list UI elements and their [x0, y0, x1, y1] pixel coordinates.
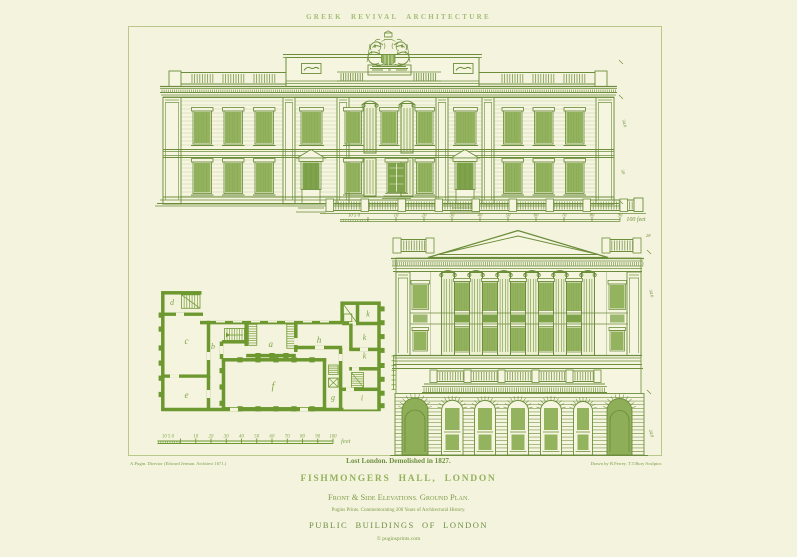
svg-text:100: 100 [329, 435, 337, 440]
svg-text:30: 30 [620, 169, 626, 175]
svg-text:k: k [366, 310, 370, 319]
svg-text:i: i [361, 394, 363, 403]
svg-text:10 5 0: 10 5 0 [162, 435, 175, 440]
svg-text:10: 10 [394, 214, 399, 219]
svg-text:h: h [317, 335, 322, 345]
svg-text:40: 40 [239, 435, 244, 440]
svg-text:24.8: 24.8 [648, 429, 655, 439]
svg-text:k: k [363, 333, 367, 342]
svg-text:b: b [211, 342, 215, 351]
svg-text:g: g [331, 393, 335, 402]
svg-text:20: 20 [209, 435, 214, 440]
svg-text:100 feet: 100 feet [626, 216, 645, 223]
svg-text:50: 50 [254, 435, 259, 440]
svg-text:50: 50 [506, 214, 511, 219]
svg-text:30: 30 [450, 214, 455, 219]
svg-text:e: e [185, 390, 189, 400]
svg-text:34.6: 34.6 [621, 119, 628, 129]
svg-text:40: 40 [478, 214, 483, 219]
svg-text:80: 80 [300, 435, 305, 440]
svg-text:10: 10 [193, 435, 198, 440]
svg-text:60: 60 [534, 214, 539, 219]
svg-text:10 5 0: 10 5 0 [348, 214, 361, 219]
svg-text:k: k [363, 352, 367, 361]
svg-text:c: c [185, 336, 189, 346]
svg-text:60: 60 [270, 435, 275, 440]
svg-text:feet: feet [341, 438, 351, 445]
svg-text:20: 20 [422, 214, 427, 219]
svg-text:70: 70 [285, 435, 290, 440]
svg-text:90: 90 [618, 214, 623, 219]
svg-text:70: 70 [562, 214, 567, 219]
svg-text:34.6: 34.6 [648, 289, 655, 299]
svg-text:28: 28 [646, 233, 651, 238]
svg-text:30: 30 [224, 435, 229, 440]
svg-text:90: 90 [315, 435, 320, 440]
svg-text:a: a [268, 339, 273, 349]
svg-text:80: 80 [590, 214, 595, 219]
svg-text:f: f [272, 381, 276, 392]
